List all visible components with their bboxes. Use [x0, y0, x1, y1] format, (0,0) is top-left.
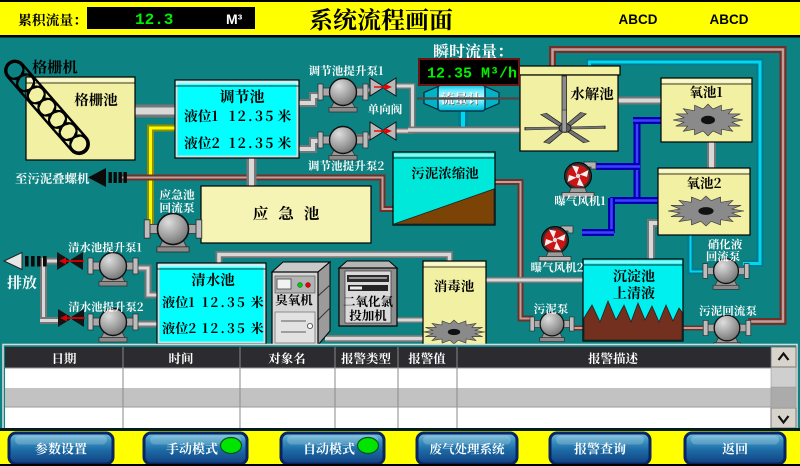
svg-text:12.3: 12.3 [135, 11, 173, 29]
svg-text:ABCD: ABCD [710, 12, 749, 27]
svg-text:12.35 M³/h: 12.35 M³/h [427, 66, 517, 83]
svg-text:M³: M³ [226, 11, 243, 27]
svg-text:ABCD: ABCD [619, 12, 658, 27]
